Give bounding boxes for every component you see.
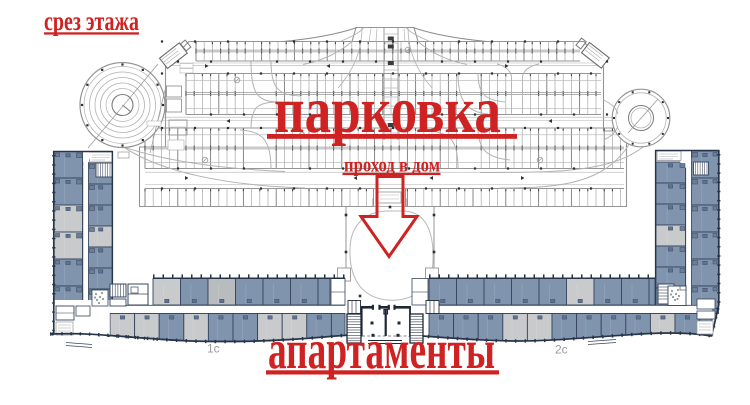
svg-text:срез этажа: срез этажа xyxy=(44,5,139,36)
svg-text:1с: 1с xyxy=(207,342,220,356)
svg-text:2с: 2с xyxy=(555,343,568,357)
